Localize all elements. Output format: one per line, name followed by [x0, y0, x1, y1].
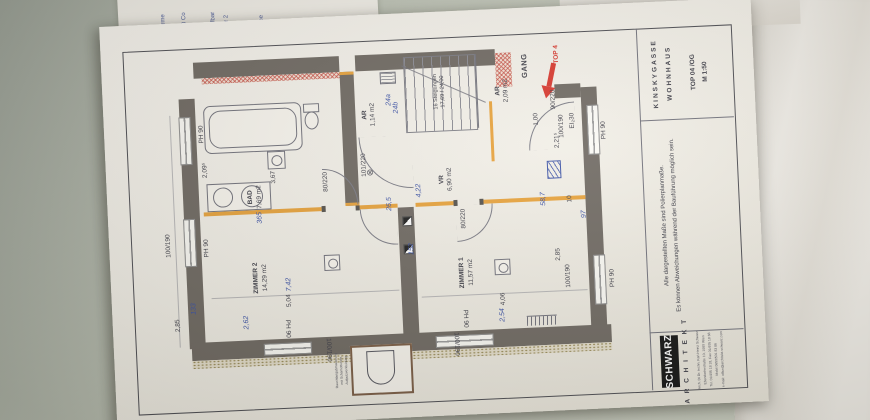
window-left-upper: [178, 117, 192, 165]
dim-left-height: 2,85: [175, 319, 182, 332]
architect-logo: SCHWARZ: [660, 335, 680, 388]
window-parapet-label: PH 90: [204, 239, 211, 257]
window-parapet-label: PH 90: [609, 269, 616, 287]
paper-text-fragment: lbar: [210, 12, 217, 22]
floor-plan-sheet: KINSKYGASSE WOHNHAUS TOP 04 /OG M 1:50 A…: [99, 0, 769, 420]
dim-bad-width: 3,67: [271, 171, 278, 184]
appliance-drum: [327, 258, 337, 268]
window-right-upper: [586, 104, 600, 154]
appliance-symbol: [494, 259, 511, 276]
zimmer1-door-size: 80/220: [461, 209, 468, 229]
entrance-label: TOP 4: [553, 45, 560, 64]
handwritten-note: 2,54: [499, 308, 507, 322]
dim-right-lower: 2,85: [555, 248, 562, 261]
room-label-zimmer2: ZIMMER 2: [253, 262, 261, 293]
window-bottom-left: [264, 342, 312, 356]
dim-z1-width: 4,06: [500, 292, 507, 305]
room-area-bad: 7,69 m2: [256, 185, 264, 209]
boiler-symbol: [380, 72, 397, 85]
door-post: [322, 206, 326, 212]
section-marker: [402, 216, 412, 226]
room-area-ar1: 1,14 m2: [370, 103, 378, 127]
room-area-zimmer2: 14,29 m2: [262, 264, 270, 291]
handwritten-note: 58,7: [540, 192, 548, 206]
room-label-gang: GANG: [520, 53, 529, 78]
blue-stamp-mark: [547, 160, 562, 179]
orange-cap: [339, 72, 353, 76]
handwritten-note: 133: [190, 303, 198, 315]
logo-text: SCHWARZ: [664, 334, 676, 388]
photo-of-floor-plan: rme 60 Co lbar tr 2 be KINSKYGASSE WOHNH…: [0, 0, 870, 420]
appliance-drum: [498, 262, 508, 272]
room-label-vr: VR: [439, 175, 446, 184]
bad-door-size: 80/220: [323, 172, 330, 192]
room-area-vr: 6,90 m2: [447, 167, 455, 191]
window-parapet-label: PH 90: [198, 125, 205, 143]
room-area-ar2: 2,09 m2: [503, 79, 511, 103]
arrow-shaft: [546, 63, 556, 88]
chimney-niche: [350, 343, 414, 396]
handwritten-note: 4,22: [415, 184, 423, 198]
bathtub-inner: [208, 107, 298, 149]
entrance-door-size: 90/220: [550, 89, 557, 109]
fire-rating-label: EI₂30: [569, 113, 576, 129]
dim-right-upper: 2,21⁵: [554, 132, 561, 148]
ceiling-lamp-symbol: ⊗: [366, 167, 374, 178]
handwritten-note: 97: [580, 210, 587, 218]
scale-label: M 1:50: [702, 61, 709, 82]
chimney-flue: [366, 350, 396, 385]
window-size-label: 100/190: [324, 338, 332, 362]
room-area-zimmer1: 11,57 m2: [468, 259, 476, 286]
wall-gang-stub: [554, 83, 581, 98]
handwritten-note: 2,62: [243, 316, 251, 330]
bathtub: [203, 102, 303, 154]
handwritten-note: 365: [256, 212, 264, 224]
appliance-symbol: [324, 254, 341, 271]
radiator-symbol: [527, 315, 557, 326]
window-right-lower: [593, 254, 607, 304]
dim-wall-offset: 10: [567, 195, 574, 203]
handwritten-note: 152: [408, 243, 416, 255]
window-parapet-label: PH 90: [461, 310, 468, 328]
dim-bad-depth: 2,09⁵: [202, 162, 209, 178]
entrance-door-width: 1,00: [533, 113, 540, 126]
window-parapet-label: PH 90: [601, 121, 608, 139]
room-label-ar2: AR: [495, 86, 502, 96]
window-size-label: 100/190: [165, 234, 173, 258]
room-label-bad: BAD: [247, 190, 254, 204]
room-label-zimmer1: ZIMMER 1: [459, 257, 467, 288]
washing-machine: [267, 151, 286, 170]
handwritten-note: 24b: [392, 102, 400, 114]
window-parapet-label: PH 90: [283, 320, 290, 338]
handwritten-note: 24a: [385, 94, 393, 106]
window-left-lower: [183, 219, 197, 267]
room-label-ar1: AR: [362, 110, 369, 120]
window-size-label: 100/190: [452, 332, 460, 356]
window-size-label: 100/190: [565, 264, 573, 288]
dim-z2-width: 5,04: [286, 294, 293, 307]
handwritten-note: 7,42: [285, 278, 293, 292]
washing-machine-drum: [271, 155, 282, 166]
